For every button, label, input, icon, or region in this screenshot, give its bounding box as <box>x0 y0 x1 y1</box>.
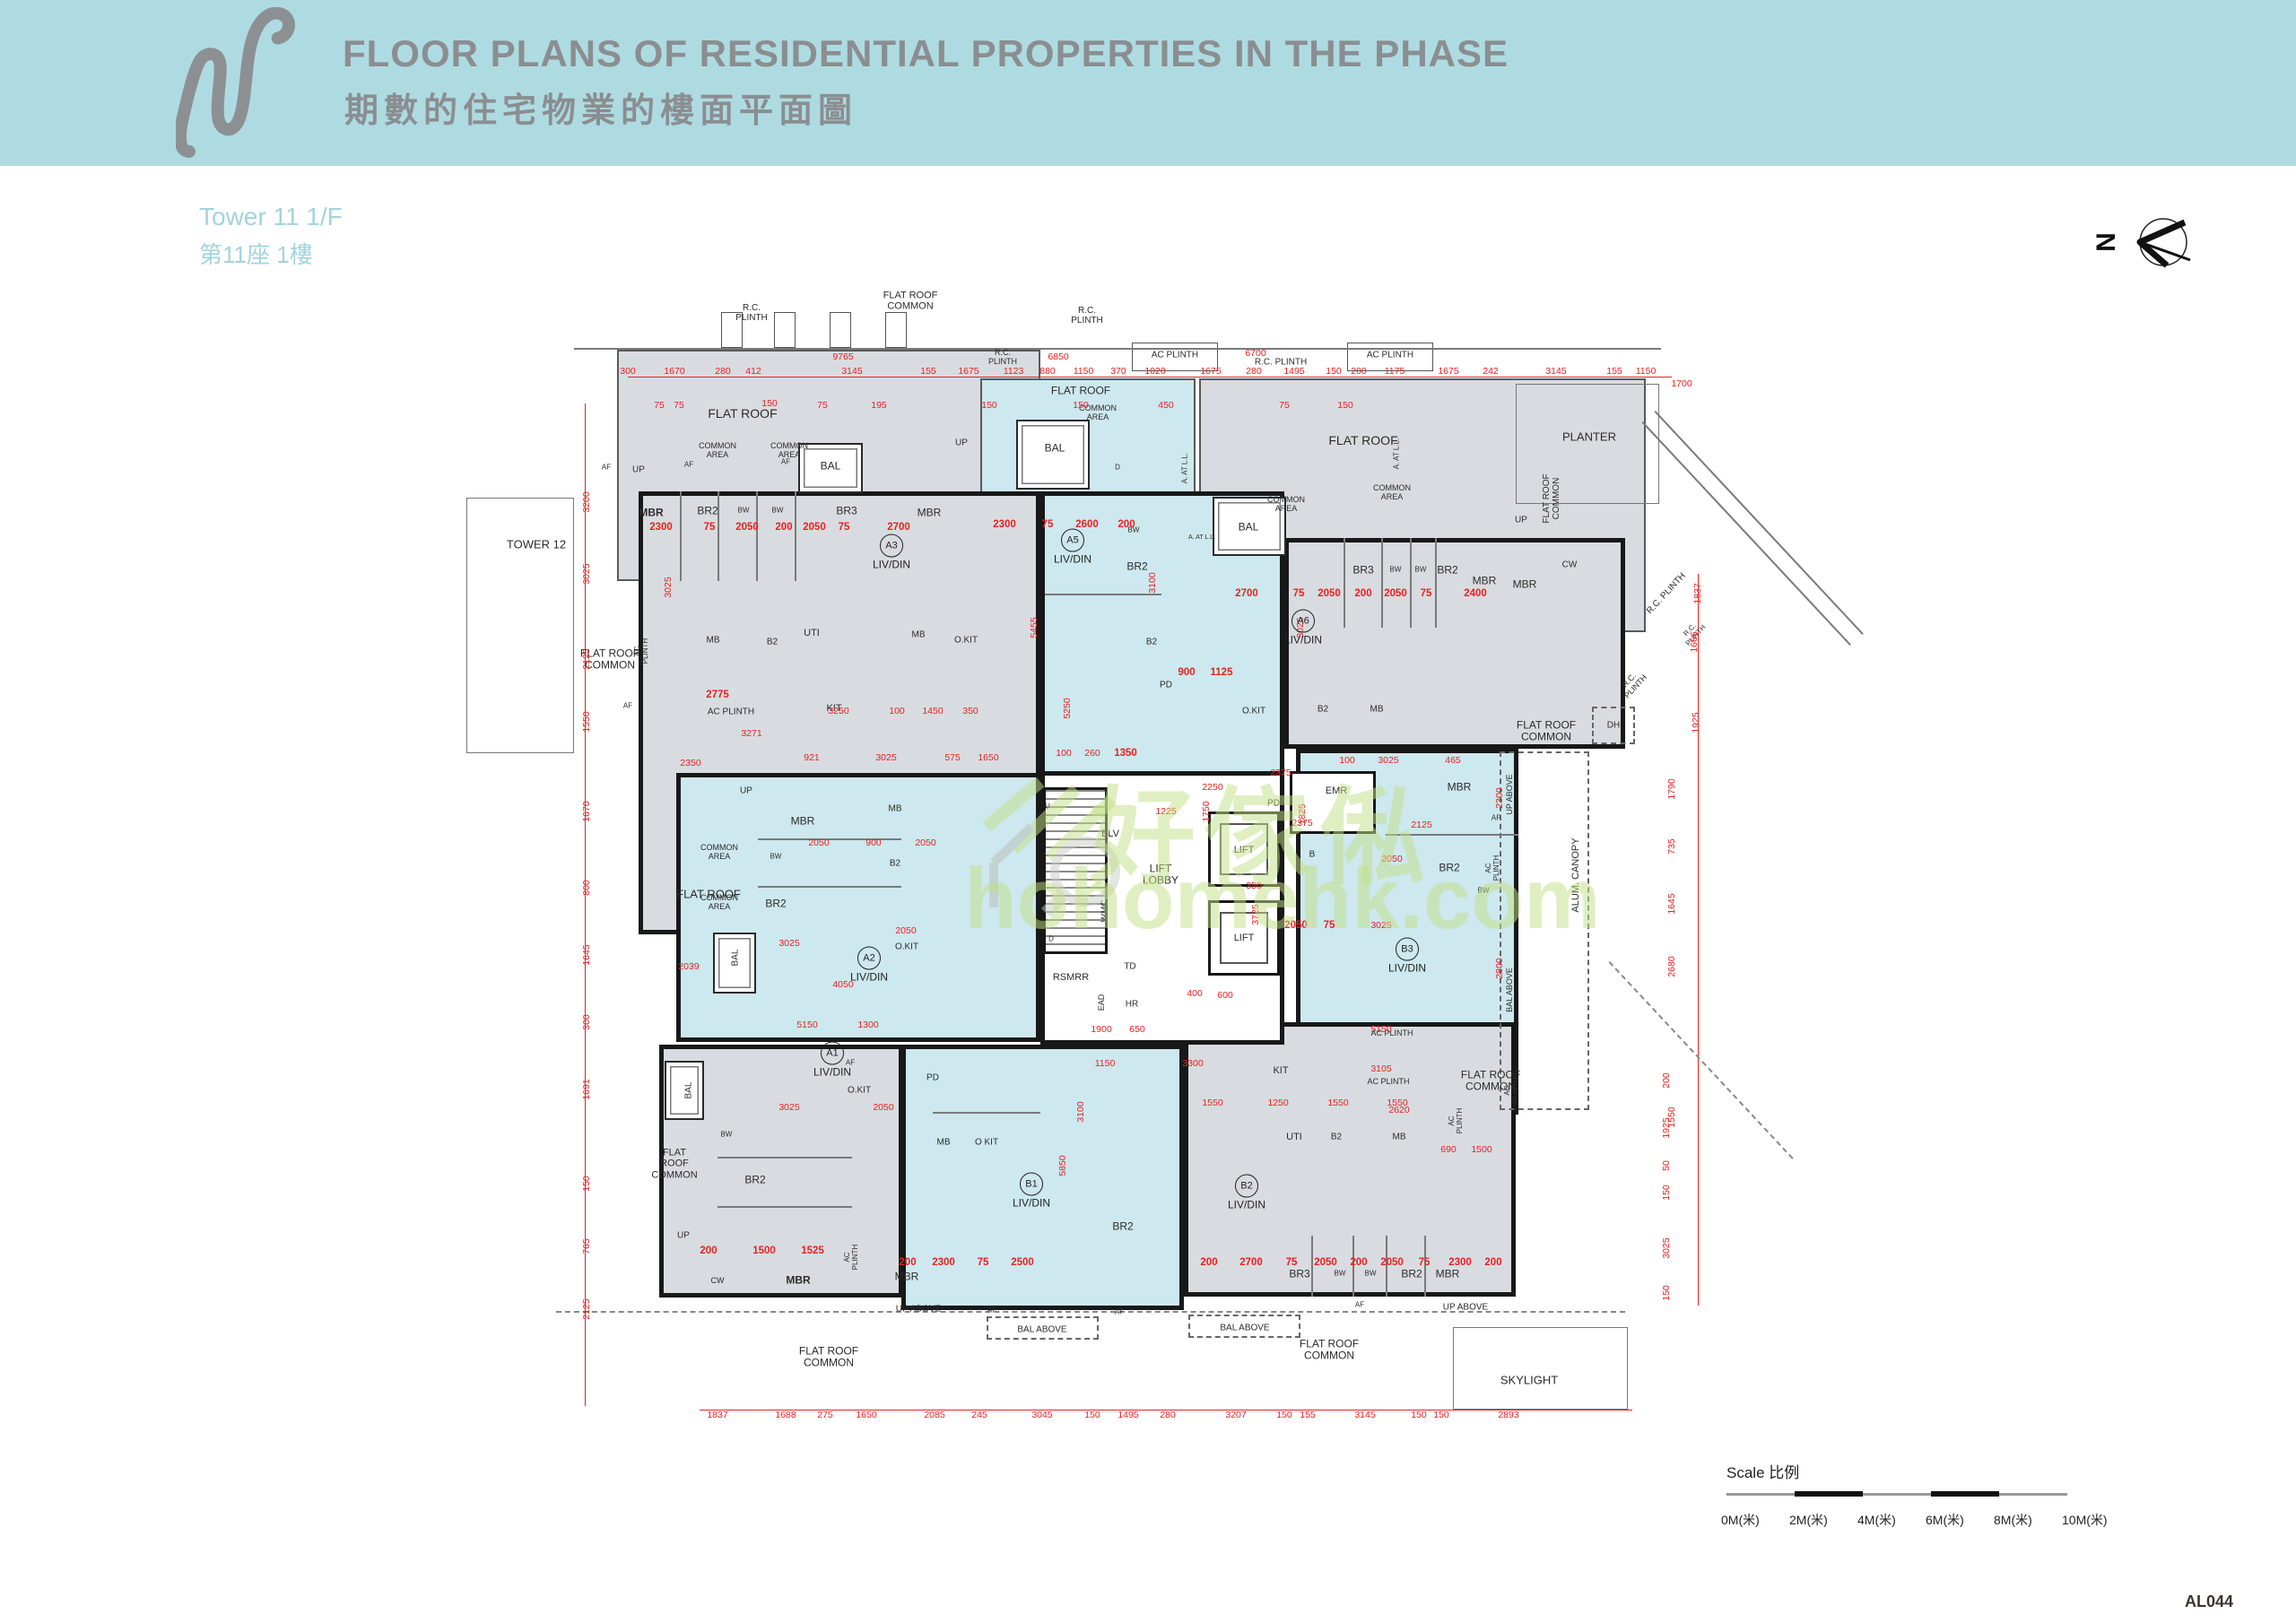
plan-label: FLAT ROOF COMMON <box>799 1346 858 1370</box>
dimension-value: 2700 <box>1235 588 1258 599</box>
unit-livdin-label: LIV/DIN <box>873 559 910 571</box>
plan-label: BAL ABOVE <box>1220 1323 1269 1332</box>
dimension-value: 2125 <box>1411 820 1431 830</box>
dimension-value: 1500 <box>752 1245 776 1256</box>
dimension-value: 1645 <box>581 944 592 965</box>
plan-label: AC PLINTH <box>1152 350 1198 360</box>
unit-id-badge: A5 <box>1061 529 1084 552</box>
region-unit-b2 <box>1184 1022 1516 1297</box>
dimension-value: 3100 <box>1075 1101 1086 1122</box>
scale-segment <box>1726 1493 1795 1496</box>
plan-label: U <box>1045 803 1050 811</box>
plan-label: BAL <box>1239 521 1259 533</box>
dimension-value: 155 <box>920 366 936 377</box>
unit-id-badge: A6 <box>1291 610 1315 633</box>
dimension-value: 1675 <box>958 366 978 377</box>
plan-line <box>574 348 1661 350</box>
plan-line <box>933 1112 1040 1114</box>
dimension-value: 2050 <box>915 838 935 848</box>
dimension-value: 150 <box>1337 400 1353 411</box>
dimension-value: 350 <box>1246 881 1262 891</box>
dimension-value: 2050 <box>1381 854 1402 864</box>
plan-label: AF <box>1492 815 1500 823</box>
scale-tick: 10M(米) <box>2062 1511 2108 1529</box>
page: FLOOR PLANS OF RESIDENTIAL PROPERTIES IN… <box>0 0 2296 1623</box>
plan-label: AC PLINTH <box>1485 855 1501 881</box>
dimension-value: 75 <box>674 400 684 411</box>
dimension-value: 450 <box>1158 400 1174 411</box>
plan-label: R.C. PLINTH <box>1071 306 1103 325</box>
plan-label: BAL <box>683 1082 693 1099</box>
scale-tick: 0M(米) <box>1721 1511 1760 1529</box>
plan-label: MBR <box>791 815 815 827</box>
region-skylight-box <box>1453 1327 1628 1410</box>
plan-label: FLAT ROOF <box>676 889 741 902</box>
unit-livdin-label: LIV/DIN <box>1388 962 1426 975</box>
dimension-value: 275 <box>817 1410 833 1420</box>
dimension-value: 1150 <box>1074 366 1094 377</box>
dimension-value: 880 <box>1039 366 1056 377</box>
dimension-value: 150 <box>981 400 997 411</box>
dimension-value: 1650 <box>856 1410 876 1420</box>
dimension-value: 2300 <box>932 1257 955 1268</box>
unit-id-badge: B3 <box>1396 938 1419 961</box>
plan-label: UP <box>740 785 752 795</box>
dimension-value: 1837 <box>1692 583 1703 603</box>
dimension-value: 735 <box>1666 838 1677 855</box>
scale-segment <box>1931 1491 1999 1497</box>
plan-line <box>1698 574 1699 1306</box>
plan-label: UP <box>1515 515 1527 525</box>
plan-line <box>1655 411 1864 635</box>
plan-label: BW <box>1335 1271 1346 1279</box>
dimension-value: 200 <box>1200 1257 1217 1268</box>
plan-label: BAL <box>730 950 740 967</box>
dimension-value: 75 <box>978 1257 989 1268</box>
plan-line <box>717 1157 852 1159</box>
plan-label: O.KIT <box>1242 706 1265 716</box>
plan-label: O.KIT <box>895 942 918 951</box>
plan-label: R.C. PLINTH <box>1645 571 1688 616</box>
plan-label: AC PLINTH <box>1504 1078 1520 1103</box>
plan-label: AC PLINTH <box>1448 1108 1465 1133</box>
plan-label: BW <box>721 1132 733 1140</box>
dimension-value: 75 <box>1324 920 1335 931</box>
plan-label: UP ABOVE <box>1505 774 1514 814</box>
dimension-value: 200 <box>700 1245 717 1256</box>
plan-label: BR2 <box>1401 1268 1422 1280</box>
unit-label-a1: A1LIV/DIN <box>813 1042 851 1079</box>
unit-livdin-label: LIV/DIN <box>813 1066 851 1079</box>
dimension-value: 260 <box>1084 748 1100 759</box>
plan-label: TOWER 12 <box>507 539 566 552</box>
plan-label: MBR <box>1448 781 1472 793</box>
dimension-value: 1675 <box>1438 366 1458 377</box>
dimension-value: 3145 <box>841 366 862 377</box>
plan-label: BW <box>770 854 782 862</box>
plan-label: AF <box>602 464 611 473</box>
dimension-value: 150 <box>1084 1410 1100 1420</box>
plan-label: DH <box>1607 720 1620 730</box>
dimension-value: 3271 <box>741 728 761 739</box>
plan-label: BAL <box>821 460 841 472</box>
dimension-value: 1150 <box>1636 366 1657 377</box>
unit-id-badge: A3 <box>880 534 903 558</box>
dimension-value: 2700 <box>887 522 910 533</box>
dimension-value: 2050 <box>895 925 916 936</box>
dimension-value: 370 <box>1110 366 1126 377</box>
dimension-value: 150 <box>1661 1285 1672 1301</box>
dimension-value: 3025 <box>778 938 799 949</box>
dimension-value: 150 <box>1326 366 1342 377</box>
plan-line <box>1386 834 1518 836</box>
plan-label: BR3 <box>836 505 857 516</box>
dimension-value: 3105 <box>1370 1063 1391 1074</box>
plan-label: PLANTER <box>1562 431 1616 445</box>
dimension-value: 690 <box>1440 1144 1457 1155</box>
plan-label: MBR <box>639 507 663 518</box>
plan-line <box>1344 538 1345 628</box>
dimension-value: 1300 <box>857 1020 878 1030</box>
unit-label-b3: B3LIV/DIN <box>1388 938 1426 975</box>
dimension-value: 242 <box>1483 366 1499 377</box>
unit-label-a6: A6LIV/DIN <box>1284 610 1322 647</box>
dimension-value: 2050 <box>735 522 759 533</box>
unit-label-a2: A2LIV/DIN <box>850 947 888 984</box>
dimension-value: 100 <box>1056 748 1072 759</box>
dimension-value: 1925 <box>1661 1117 1672 1138</box>
dimension-value: 900 <box>865 838 882 848</box>
dimension-value: 1650 <box>978 752 998 763</box>
plan-label: B2 <box>767 637 778 647</box>
dimension-value: 1525 <box>801 1245 824 1256</box>
dimension-value: 6850 <box>1048 352 1068 362</box>
plan-label: BW <box>1390 567 1402 575</box>
dimension-value: 100 <box>1339 755 1355 766</box>
plan-label: B2 <box>1331 1132 1342 1141</box>
plan-label: BR2 <box>765 898 786 909</box>
dimension-value: 1500 <box>1471 1144 1492 1155</box>
dimension-value: 75 <box>1286 1257 1298 1268</box>
dimension-value: 1250 <box>1267 1098 1288 1108</box>
dimension-value: 600 <box>1217 990 1233 1001</box>
dimension-value: 412 <box>745 366 761 377</box>
dimension-value: 200 <box>899 1257 916 1268</box>
plan-label: FLAT ROOF COMMON <box>1300 1339 1359 1363</box>
plan-label: MB <box>1393 1132 1406 1141</box>
dimension-value: 2050 <box>1380 1257 1404 1268</box>
plan-label: B <box>1309 849 1316 859</box>
plan-label: AC PLINTH <box>844 1245 860 1270</box>
plan-line <box>628 377 1672 378</box>
plan-label: BR2 <box>1126 560 1147 572</box>
unit-livdin-label: LIV/DIN <box>1228 1199 1265 1211</box>
dimension-value: 1700 <box>1671 378 1692 389</box>
dimension-value: 75 <box>1042 519 1054 530</box>
dimension-value: 921 <box>804 752 820 763</box>
dimension-value: 1925 <box>1691 712 1701 733</box>
plan-line <box>1381 538 1383 628</box>
region-column-4 <box>885 312 907 348</box>
plan-label: COMMON AREA <box>1267 495 1305 513</box>
dimension-value: 2300 <box>993 519 1016 530</box>
plan-label: A. AT L.L. <box>1394 438 1402 469</box>
dimension-value: 5150 <box>1370 1024 1391 1035</box>
plan-label: TD <box>1124 961 1135 971</box>
plan-label: WMC <box>1100 900 1109 923</box>
plan-label: AC PLINTH <box>708 707 754 716</box>
dimension-value: 3145 <box>1545 366 1566 377</box>
dimension-value: 2350 <box>680 758 700 768</box>
dimension-value: 150 <box>581 1176 592 1192</box>
dimension-value: 3250 <box>828 706 848 716</box>
dimension-value: 1495 <box>1283 366 1304 377</box>
plan-label: O KIT <box>975 1137 998 1147</box>
dimension-value: 1550 <box>1327 1098 1348 1108</box>
plan-label: MBR <box>1473 575 1497 586</box>
dimension-value: 2800 <box>1494 958 1505 978</box>
dimension-value: 6700 <box>1245 348 1265 359</box>
region-stair <box>1043 787 1108 954</box>
dimension-value: 75 <box>817 400 828 411</box>
plan-line <box>585 404 586 1406</box>
dimension-value: 3025 <box>581 563 592 584</box>
dimension-value: 75 <box>839 522 850 533</box>
plan-label: MBR <box>786 1274 810 1286</box>
dimension-value: 2775 <box>706 690 729 700</box>
plan-label: AF <box>684 462 693 470</box>
plan-label: FLAT ROOF COMMON <box>1542 473 1561 523</box>
plan-label: COMMON AREA <box>1373 483 1411 501</box>
plan-line <box>758 886 901 888</box>
dimension-value: 2085 <box>924 1410 944 1420</box>
plan-line <box>1642 421 1851 646</box>
plan-line <box>1311 1236 1313 1297</box>
dimension-value: 2300 <box>1494 787 1505 808</box>
dimension-value: 155 <box>1606 366 1622 377</box>
dimension-value: 9765 <box>832 352 853 362</box>
unit-label-b1: B1LIV/DIN <box>1013 1173 1050 1210</box>
plan-label: PD <box>1267 798 1280 808</box>
dimension-value: 200 <box>1350 1257 1367 1268</box>
dimension-value: 150 <box>1433 1410 1449 1420</box>
dimension-value: 200 <box>1118 519 1135 530</box>
unit-label-b2: B2LIV/DIN <box>1228 1175 1265 1211</box>
plan-label: A. AT L.L. <box>1182 453 1190 483</box>
scale-bar-segments: 0M(米)2M(米)4M(米)6M(米)8M(米)10M(米) <box>1726 1491 2067 1497</box>
plan-label: CW <box>1562 560 1578 569</box>
dimension-value: 155 <box>1300 1410 1316 1420</box>
plan-label: FLAT ROOF COMMON <box>1517 720 1576 744</box>
dimension-value: 150 <box>1411 1410 1427 1420</box>
plan-line <box>756 491 758 581</box>
dimension-value: 3025 <box>1661 1237 1672 1258</box>
plan-label: AF <box>1355 1302 1364 1310</box>
dimension-value: 300 <box>581 1014 592 1030</box>
plan-label: BR2 <box>697 505 717 516</box>
dimension-value: 5150 <box>796 1020 817 1030</box>
plan-label: BW <box>1415 567 1427 575</box>
plan-label: KIT <box>1273 1065 1288 1076</box>
plan-label: UP <box>677 1230 690 1240</box>
dimension-value: 2700 <box>1239 1257 1263 1268</box>
plan-label: LIFT <box>1234 845 1255 855</box>
plan-label: AC PLINTH <box>1367 1077 1409 1086</box>
plan-line <box>680 491 682 581</box>
dimension-value: 2050 <box>1284 920 1308 931</box>
plan-label: UTI <box>804 628 820 638</box>
region-column-2 <box>774 312 796 348</box>
dimension-value: 2050 <box>808 838 829 848</box>
scale-tick: 2M(米) <box>1789 1511 1828 1529</box>
dimension-value: 2375 <box>1270 768 1291 778</box>
dimension-value: 3207 <box>1225 1410 1246 1420</box>
region-balcony-a5 <box>1016 420 1090 490</box>
dimension-value: 100 <box>889 706 905 716</box>
plan-label: BAL ABOVE <box>1505 968 1514 1012</box>
scale-segment <box>1795 1491 1863 1497</box>
plan-label: EAD <box>1097 994 1106 1011</box>
plan-label: RSMRR <box>1053 972 1089 983</box>
dimension-value: 5455 <box>1029 617 1039 638</box>
plan-label: BR2 <box>744 1174 765 1185</box>
plan-label: LIFT LOBBY <box>1143 864 1178 888</box>
plan-line <box>1410 538 1412 628</box>
dimension-value: 1495 <box>1118 1410 1138 1420</box>
dimension-value: 280 <box>1246 366 1262 377</box>
dimension-value: 1150 <box>1095 1058 1116 1069</box>
plan-label: FLAT ROOF <box>1051 385 1110 396</box>
plan-label: AC PLINTH <box>1367 350 1413 360</box>
plan-label: UP ABOVE <box>896 1304 941 1314</box>
dimension-value: 2300 <box>649 522 673 533</box>
dimension-value: 2039 <box>678 961 699 972</box>
plan-label: B2 <box>1318 704 1328 714</box>
plan-label: MBR <box>918 507 942 518</box>
scale-tick: 6M(米) <box>1926 1511 1964 1529</box>
plan-label: MB <box>1370 704 1384 714</box>
dimension-value: 1550 <box>1202 1098 1222 1108</box>
dimension-value: 1125 <box>1211 667 1233 678</box>
dimension-value: 3025 <box>875 752 896 763</box>
plan-label: MB <box>889 803 902 813</box>
scale-segment <box>1999 1493 2067 1496</box>
plan-label: HR <box>1126 999 1138 1009</box>
dimension-value: 150 <box>1073 400 1089 411</box>
dimension-value: 1350 <box>1114 748 1137 759</box>
plan-label: AF <box>781 459 790 467</box>
plan-label: COMMON AREA <box>700 843 738 861</box>
dimension-value: 575 <box>944 752 961 763</box>
plan-label: BR3 <box>1352 564 1373 576</box>
plan-label: COMMON AREA <box>699 441 736 459</box>
dimension-value: 2680 <box>1666 956 1677 976</box>
unit-id-badge: A1 <box>821 1042 844 1065</box>
dimension-value: 1691 <box>581 1079 592 1099</box>
region-column-3 <box>830 312 851 348</box>
dimension-value: 3045 <box>1031 1410 1052 1420</box>
dimension-value: 650 <box>1129 1024 1145 1035</box>
dimension-value: 900 <box>1178 667 1195 678</box>
plan-label: ELV <box>1101 829 1119 839</box>
dimension-value: 75 <box>654 400 665 411</box>
plan-label: MB <box>912 629 926 639</box>
plan-label: ALUM. CANOPY <box>1570 838 1581 912</box>
dimension-value: 465 <box>1445 755 1461 766</box>
unit-livdin-label: LIV/DIN <box>1284 634 1322 647</box>
unit-label-a3: A3LIV/DIN <box>873 534 910 571</box>
plan-label: BR3 <box>1289 1268 1309 1280</box>
dimension-value: 3025 <box>1378 755 1398 766</box>
dimension-value: 200 <box>775 522 792 533</box>
dimension-value: 1175 <box>1385 366 1405 377</box>
plan-label: A. AT L.L. <box>1188 534 1215 542</box>
plan-line <box>1609 961 1794 1159</box>
plan-line <box>717 1206 852 1208</box>
unit-id-badge: B2 <box>1235 1175 1258 1198</box>
dimension-value: 200 <box>1484 1257 1501 1268</box>
dimension-value: 2050 <box>873 1102 893 1113</box>
dimension-value: 1837 <box>707 1410 727 1420</box>
plan-label: BR2 <box>1112 1220 1133 1232</box>
dimension-value: 3300 <box>1182 1058 1203 1069</box>
dimension-value: 1550 <box>1387 1098 1407 1108</box>
plan-line <box>795 491 796 581</box>
plan-label: FLAT ROOF <box>1328 434 1397 448</box>
scale-label: Scale 比例 <box>1726 1460 2067 1482</box>
dimension-value: 1670 <box>664 366 684 377</box>
plan-label: BW <box>1365 1271 1377 1279</box>
dimension-value: 3145 <box>1354 1410 1375 1420</box>
dimension-value: 280 <box>715 366 731 377</box>
scale-segment <box>1863 1493 1931 1496</box>
plan-label: MB <box>707 635 720 645</box>
plan-label: R.C. PLINTH <box>988 348 1017 366</box>
plan-label: MB <box>937 1137 951 1147</box>
dimension-value: 2893 <box>1498 1410 1518 1420</box>
plan-label: UTI <box>1286 1132 1302 1142</box>
plan-label: B2 <box>1146 637 1157 647</box>
dimension-value: 200 <box>1354 588 1371 599</box>
plan-label: FLAT ROOF COMMON <box>883 291 938 313</box>
drawing-number: AL044 <box>2185 1593 2233 1611</box>
dimension-value: 3025 <box>778 1102 799 1113</box>
dimension-value: 200 <box>1351 366 1367 377</box>
scale-tick: 8M(米) <box>1994 1511 2032 1529</box>
plan-label: LIFT <box>1234 933 1255 943</box>
plan-label: EMR <box>1326 785 1347 796</box>
dimension-value: 245 <box>971 1410 987 1420</box>
plan-label: MBR <box>1513 578 1537 590</box>
dimension-value: 3725 <box>1250 904 1261 924</box>
dimension-value: 75 <box>1293 588 1305 599</box>
plan-label: CW <box>711 1276 725 1285</box>
plan-label: UP <box>955 438 968 447</box>
unit-label-a5: A5LIV/DIN <box>1054 529 1091 566</box>
dimension-value: 2050 <box>1318 588 1341 599</box>
plan-label: B2 <box>890 858 900 868</box>
dimension-value: 1675 <box>1200 366 1221 377</box>
unit-livdin-label: LIV/DIN <box>1013 1197 1050 1210</box>
plan-label: SKYLIGHT <box>1500 1375 1558 1388</box>
plan-label: BW <box>738 508 750 516</box>
dimension-value: 1450 <box>922 706 943 716</box>
plan-label: AF <box>623 703 632 711</box>
plan-label: FLAT ROOF COMMON <box>651 1148 697 1181</box>
dimension-value: 2400 <box>1464 588 1487 599</box>
dimension-value: 5850 <box>1057 1155 1068 1176</box>
dimension-value: 400 <box>1187 988 1203 999</box>
